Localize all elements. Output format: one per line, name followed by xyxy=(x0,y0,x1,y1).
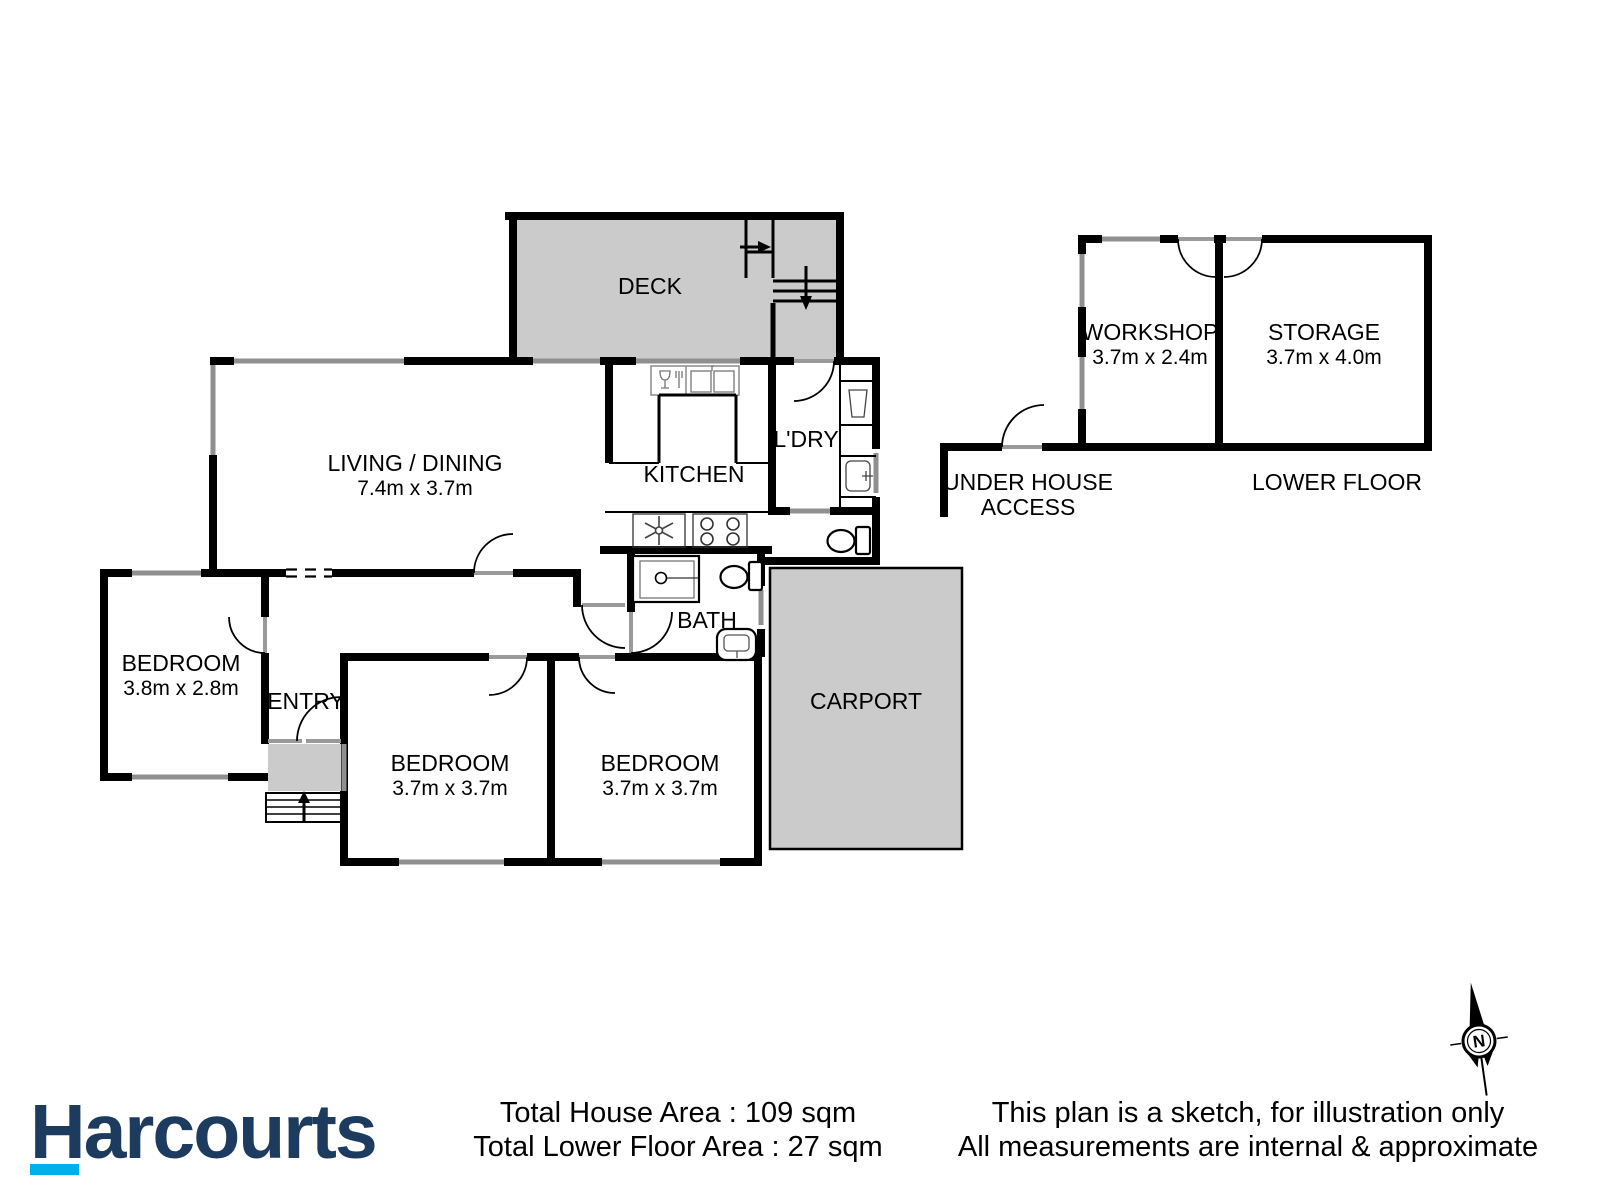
room-label-deck: DECK xyxy=(618,273,683,299)
footer: Harcourts Total House Area : 109 sqm Tot… xyxy=(30,1089,1538,1175)
washing-machine-icon xyxy=(849,390,867,417)
room-label-storage: STORAGE xyxy=(1268,319,1380,345)
wc-fixtures xyxy=(828,527,871,554)
room-label-bedroom-2: BEDROOM xyxy=(391,750,510,776)
disclaimer-line1: This plan is a sketch, for illustration … xyxy=(992,1097,1505,1129)
shower-icon xyxy=(633,556,699,602)
entry-steps xyxy=(266,791,343,822)
toilet-icon xyxy=(721,562,763,590)
compass-north-label: N xyxy=(1472,1031,1487,1052)
room-size-bedroom-3: 3.7m x 3.7m xyxy=(602,777,718,800)
room-label-bath: BATH xyxy=(677,607,737,633)
room-label-bedroom-3: BEDROOM xyxy=(601,750,720,776)
cooktop-burners-icon xyxy=(701,518,739,545)
room-label-living-dining: LIVING / DINING xyxy=(327,450,502,476)
total-house-area: Total House Area : 109 sqm xyxy=(500,1097,856,1129)
extractor-fan-icon xyxy=(645,516,673,545)
kitchen-fixtures xyxy=(605,366,770,547)
room-label-carport: CARPORT xyxy=(810,688,922,714)
label-under-house-access-line2: ACCESS xyxy=(981,494,1076,520)
label-under-house-access-line1: UNDER HOUSE xyxy=(943,469,1113,495)
north-arrow-icon: N xyxy=(1442,979,1515,1100)
room-label-workshop: WORKSHOP xyxy=(1082,319,1219,345)
floorplan-page: DECK LIVING / DINING 7.4m x 3.7m KITCHEN… xyxy=(0,0,1600,1200)
room-label-laundry: L'DRY xyxy=(773,426,838,452)
harcourts-logo: Harcourts xyxy=(30,1089,376,1175)
total-lower-floor-area: Total Lower Floor Area : 27 sqm xyxy=(473,1131,882,1163)
porch-floor xyxy=(268,744,341,791)
room-size-bedroom-2: 3.7m x 3.7m xyxy=(392,777,508,800)
room-size-workshop: 3.7m x 2.4m xyxy=(1092,346,1208,369)
dashed-opening xyxy=(286,570,332,577)
disclaimer-line2: All measurements are internal & approxim… xyxy=(958,1131,1538,1163)
room-label-kitchen: KITCHEN xyxy=(644,461,745,487)
room-label-entry: ENTRY xyxy=(267,688,345,714)
laundry-fixtures xyxy=(840,361,876,511)
toilet-icon xyxy=(828,527,871,554)
laundry-tub-icon xyxy=(846,461,873,491)
room-size-storage: 3.7m x 4.0m xyxy=(1266,346,1382,369)
label-lower-floor: LOWER FLOOR xyxy=(1252,469,1422,495)
entry-porch xyxy=(266,744,343,822)
room-label-bedroom-1: BEDROOM xyxy=(122,650,241,676)
logo-underline xyxy=(30,1164,79,1175)
room-size-living-dining: 7.4m x 3.7m xyxy=(357,477,473,500)
floorplan-canvas: DECK LIVING / DINING 7.4m x 3.7m KITCHEN… xyxy=(0,0,1600,1200)
basin-icon xyxy=(717,629,756,660)
room-size-bedroom-1: 3.8m x 2.8m xyxy=(123,677,239,700)
